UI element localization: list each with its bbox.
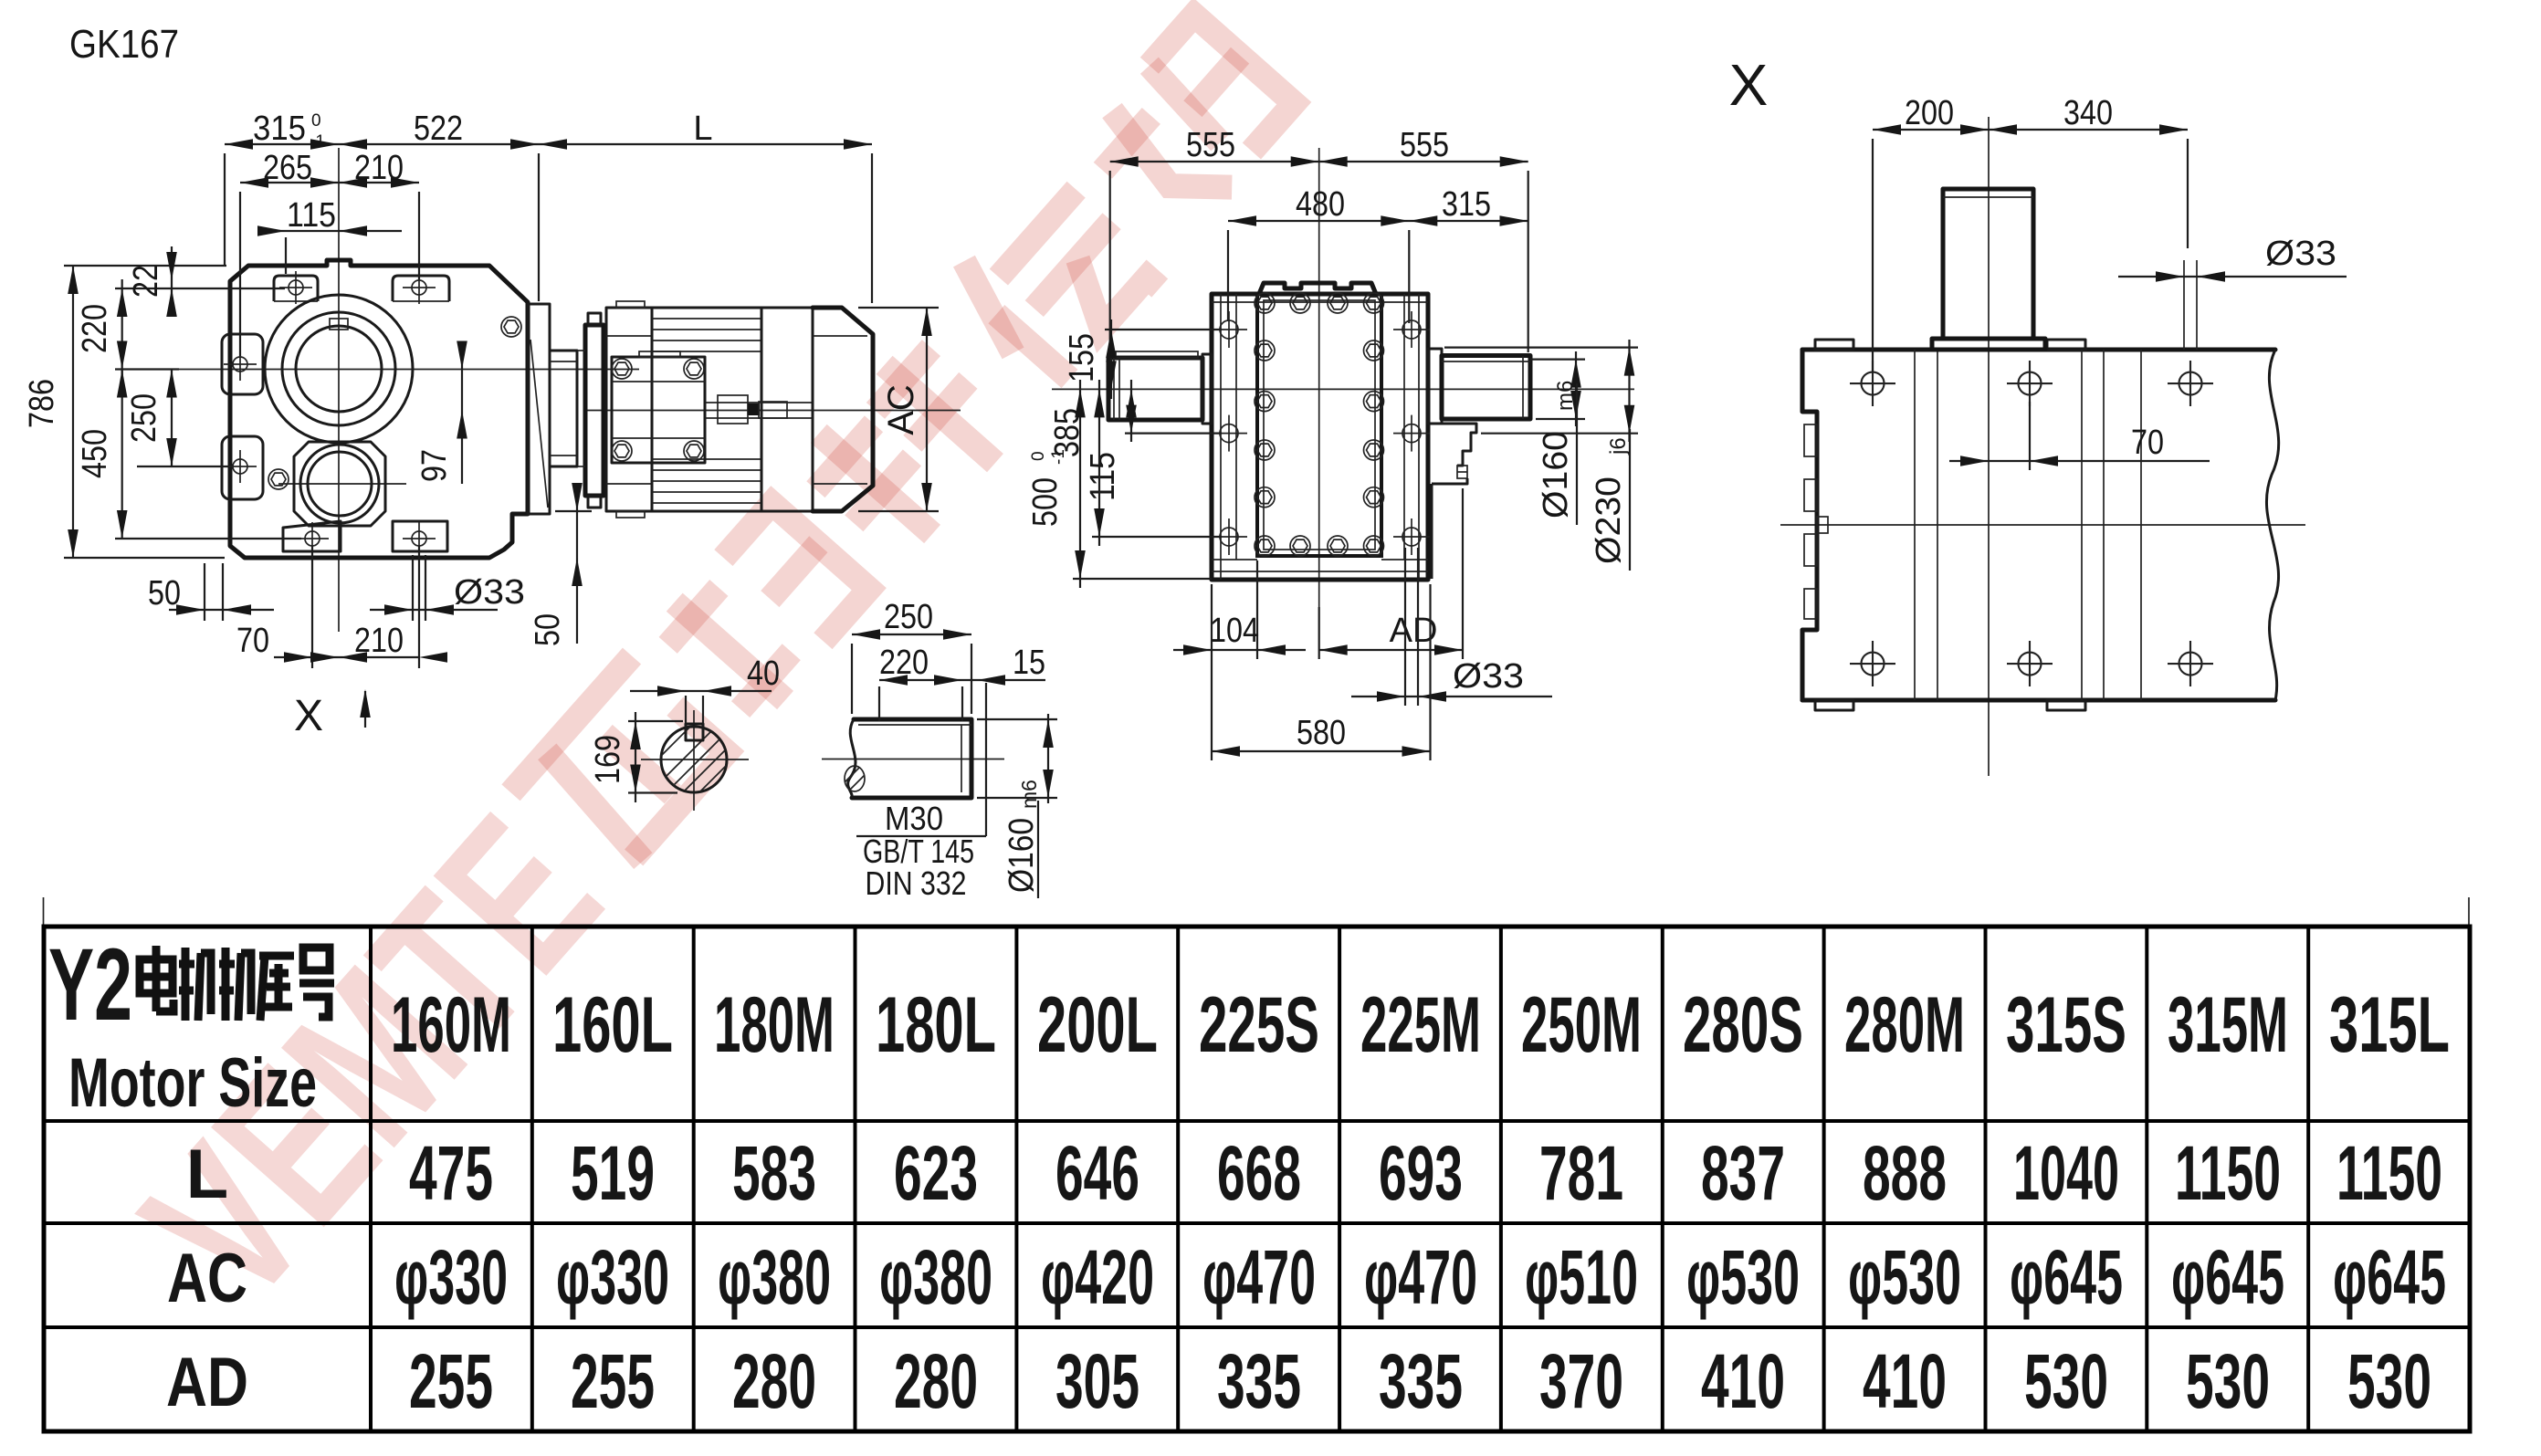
svg-text:646: 646 [1055,1130,1139,1216]
svg-text:210: 210 [354,622,404,660]
svg-text:335: 335 [1217,1338,1301,1424]
svg-text:265: 265 [263,149,312,187]
svg-text:97: 97 [415,449,454,482]
svg-text:555: 555 [1186,126,1235,164]
svg-text:φ470: φ470 [1364,1234,1477,1320]
svg-text:155: 155 [1063,333,1101,382]
svg-text:φ530: φ530 [1848,1234,1961,1320]
svg-text:500: 500 [1026,477,1065,527]
svg-text:φ470: φ470 [1202,1234,1316,1320]
svg-text:250: 250 [125,393,163,443]
svg-text:200L: 200L [1037,981,1158,1069]
svg-text:315L: 315L [2329,981,2450,1069]
svg-text:Ø33: Ø33 [1453,657,1524,696]
svg-text:Motor Size: Motor Size [68,1044,317,1122]
svg-text:315M: 315M [2168,981,2288,1069]
svg-text:AC: AC [881,384,921,435]
svg-text:φ510: φ510 [1525,1234,1638,1320]
svg-text:Ø160: Ø160 [1537,431,1575,519]
svg-text:305: 305 [1055,1338,1139,1424]
svg-text:m6: m6 [1553,381,1578,411]
svg-text:1150: 1150 [2336,1130,2442,1216]
svg-text:475: 475 [409,1130,493,1216]
svg-text:530: 530 [2186,1338,2270,1424]
svg-text:AC: AC [167,1240,247,1317]
svg-text:255: 255 [409,1338,493,1424]
svg-text:Ø33: Ø33 [2265,235,2336,273]
svg-text:255: 255 [571,1338,655,1424]
svg-text:X: X [294,692,323,740]
svg-text:315: 315 [1442,185,1491,224]
svg-text:340: 340 [2063,94,2113,132]
svg-text:280S: 280S [1683,981,1803,1069]
svg-text:φ330: φ330 [556,1234,669,1320]
svg-text:φ380: φ380 [718,1234,831,1320]
svg-text:φ530: φ530 [1686,1234,1800,1320]
svg-text:530: 530 [2347,1338,2431,1424]
svg-text:M30: M30 [885,800,943,837]
svg-text:280: 280 [894,1338,978,1424]
svg-text:280: 280 [732,1338,816,1424]
svg-text:70: 70 [2131,424,2164,462]
svg-text:φ420: φ420 [1041,1234,1154,1320]
svg-text:Y2: Y2 [48,927,132,1042]
svg-text:220: 220 [76,304,114,353]
svg-text:160L: 160L [552,981,673,1069]
svg-text:225M: 225M [1360,981,1481,1069]
svg-text:335: 335 [1379,1338,1463,1424]
svg-text:480: 480 [1296,185,1345,224]
svg-text:225S: 225S [1199,981,1319,1069]
svg-text:160M: 160M [391,981,511,1069]
svg-text:40: 40 [747,655,780,693]
svg-text:50: 50 [529,613,567,646]
svg-text:169: 169 [589,735,627,784]
svg-text:623: 623 [894,1130,978,1216]
svg-text:φ330: φ330 [394,1234,508,1320]
svg-text:15: 15 [1013,644,1045,682]
svg-text:22: 22 [127,265,165,298]
svg-text:1040: 1040 [2013,1130,2119,1216]
svg-text:115: 115 [1084,452,1122,501]
svg-text:220: 220 [879,644,929,682]
svg-text:200: 200 [1905,94,1954,132]
svg-text:450: 450 [76,429,114,478]
svg-text:1150: 1150 [2175,1130,2281,1216]
svg-text:315: 315 [253,110,306,148]
svg-text:-1: -1 [1049,449,1068,465]
svg-text:φ645: φ645 [2010,1234,2123,1320]
svg-text:410: 410 [1701,1338,1785,1424]
svg-text:φ645: φ645 [2333,1234,2446,1320]
svg-text:580: 580 [1297,714,1346,752]
svg-text:530: 530 [2024,1338,2108,1424]
svg-text:GK167: GK167 [69,22,179,67]
svg-text:j6: j6 [1606,437,1631,456]
svg-text:70: 70 [236,622,269,660]
svg-text:837: 837 [1701,1130,1785,1216]
svg-text:519: 519 [571,1130,655,1216]
svg-text:0: 0 [311,111,321,131]
svg-text:Ø33: Ø33 [454,573,525,612]
svg-text:315S: 315S [2006,981,2126,1069]
svg-text:410: 410 [1863,1338,1947,1424]
svg-text:583: 583 [732,1130,816,1216]
svg-text:888: 888 [1863,1130,1947,1216]
svg-text:250: 250 [884,598,933,636]
svg-text:180M: 180M [714,981,835,1069]
svg-text:Ø160: Ø160 [1003,818,1041,893]
svg-text:693: 693 [1379,1130,1463,1216]
svg-text:L: L [186,1136,228,1213]
svg-text:180L: 180L [876,981,996,1069]
svg-text:115: 115 [287,196,336,235]
svg-text:522: 522 [414,110,463,148]
svg-text:Ø230: Ø230 [1590,477,1628,564]
svg-text:210: 210 [354,149,404,187]
svg-text:104: 104 [1210,612,1259,650]
svg-text:0: 0 [1029,451,1048,461]
svg-text:φ380: φ380 [879,1234,992,1320]
svg-text:DIN 332: DIN 332 [866,864,967,902]
svg-text:L: L [693,110,712,148]
svg-text:781: 781 [1539,1130,1623,1216]
svg-text:786: 786 [23,379,61,428]
svg-text:668: 668 [1217,1130,1301,1216]
svg-text:280M: 280M [1844,981,1965,1069]
svg-text:250M: 250M [1521,981,1642,1069]
svg-text:555: 555 [1400,126,1449,164]
svg-text:AD: AD [166,1344,248,1421]
svg-text:X: X [1729,52,1769,118]
svg-text:370: 370 [1539,1338,1623,1424]
svg-text:50: 50 [148,574,181,613]
svg-text:φ645: φ645 [2171,1234,2284,1320]
